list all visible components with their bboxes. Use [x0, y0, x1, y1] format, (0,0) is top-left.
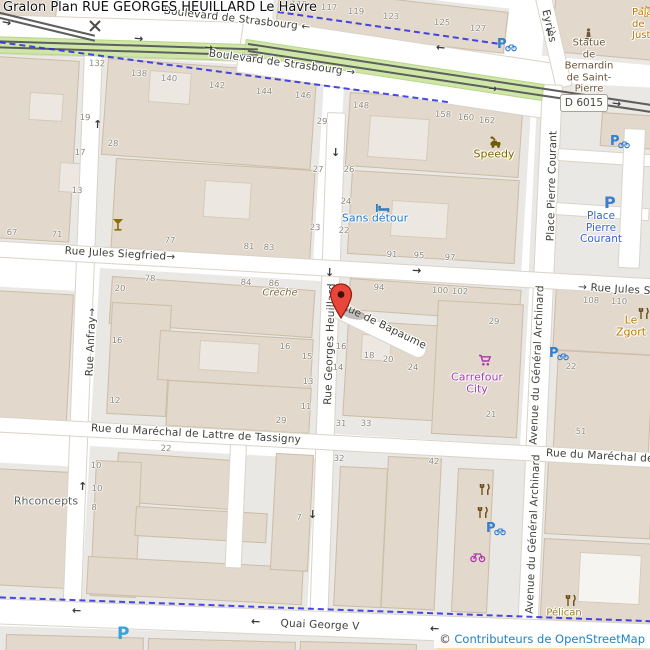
house-number: 71 — [51, 230, 62, 241]
courtyard — [198, 340, 260, 374]
oneway-arrow-icon: → — [611, 96, 622, 110]
house-number: 110 — [611, 297, 628, 308]
poi-label-palais-justice: Palais deJustice — [632, 7, 650, 42]
oneway-arrow-icon: ← — [72, 604, 82, 617]
house-number: 31 — [335, 419, 346, 430]
house-number: 29 — [316, 117, 327, 128]
house-number: 16 — [111, 336, 122, 347]
oneway-arrow-icon: → — [133, 32, 143, 46]
house-number: 83 — [263, 243, 274, 254]
house-number: 94 — [373, 283, 384, 294]
house-number: 29 — [275, 416, 286, 427]
house-number: 32 — [333, 454, 344, 465]
poi-label-creche: Crèche — [262, 287, 297, 299]
house-number: 26 — [343, 165, 354, 176]
house-number: 27 — [312, 165, 323, 176]
house-number: 140 — [161, 74, 178, 85]
oneway-arrow-icon: ↑ — [93, 118, 103, 131]
oneway-arrow-icon: ↑ — [78, 480, 88, 493]
house-number: 142 — [209, 81, 226, 92]
house-number: 28 — [107, 139, 118, 150]
oneway-arrow-icon: ← — [435, 41, 446, 55]
house-number: 148 — [353, 101, 370, 112]
oneway-arrow-icon: ↓ — [325, 266, 335, 279]
osm-attribution-link[interactable]: Contributeurs de OpenStreetMap — [454, 632, 645, 646]
house-number: 67 — [6, 228, 17, 239]
poi-label-rhconcepts: Rhconcepts — [14, 495, 78, 507]
courtyard — [577, 552, 642, 605]
building — [0, 290, 74, 424]
courtyard — [203, 180, 252, 220]
house-number: 97 — [444, 253, 455, 264]
oneway-arrow-icon: → — [203, 41, 214, 55]
house-number: 21 — [485, 410, 496, 421]
house-number: 117 — [321, 3, 338, 14]
house-number: 162 — [479, 116, 496, 127]
house-number: 24 — [340, 197, 351, 208]
house-number: 146 — [295, 91, 312, 102]
bike-parking-icon: P — [497, 36, 517, 56]
house-number: 18 — [363, 351, 374, 362]
house-number: 7 — [296, 513, 302, 523]
oneway-arrow-icon: → — [487, 81, 498, 95]
house-number: 24 — [407, 363, 418, 374]
house-number: 91 — [386, 250, 397, 261]
house-number: 20 — [382, 355, 393, 366]
map-canvas[interactable]: Boulevard de Strasbourg ←Boulevard de St… — [0, 0, 650, 650]
poi-label-speedy: Speedy — [474, 148, 515, 160]
oneway-arrow-icon: → — [412, 264, 422, 277]
house-number: 15 — [301, 352, 312, 363]
restaurant-icon — [477, 504, 489, 523]
building — [381, 456, 442, 610]
shopping-cart-icon — [478, 352, 492, 371]
parking-place-pierre-courant: P — [604, 193, 616, 212]
building — [0, 56, 80, 243]
house-number: 127 — [470, 24, 487, 35]
house-number: 100 — [432, 286, 449, 297]
poi-label-sans-detour: Sans détour — [342, 212, 408, 224]
building — [0, 468, 74, 589]
poi-label-place-pierre-courant-parking: Place PierreCourant — [577, 211, 626, 246]
poi-label-carrefour-city: CarrefourCity — [451, 372, 503, 395]
road-shield: D 6015 — [560, 94, 608, 112]
bike-parking-icon: P — [486, 520, 506, 540]
house-number: 102 — [452, 287, 469, 298]
house-number: 17 — [74, 148, 85, 159]
house-number: 132 — [89, 59, 106, 70]
courtyard — [28, 92, 64, 122]
house-number: 77 — [164, 236, 175, 247]
house-number: 119 — [348, 7, 365, 18]
svg-text:P: P — [610, 134, 620, 149]
house-number: 8 — [91, 503, 97, 513]
poi-label-pelican: Pélican — [546, 607, 581, 619]
house-number: 33 — [360, 419, 371, 430]
house-number: 84 — [240, 278, 251, 289]
oneway-arrow-icon: ↓ — [308, 508, 318, 521]
house-number: 13 — [71, 186, 82, 197]
house-number: 42 — [428, 457, 439, 468]
house-number: 12 — [109, 396, 120, 407]
poi-label-le-zgort: Le Zgort — [616, 315, 646, 338]
svg-text:P: P — [486, 521, 496, 536]
house-number: 14 — [332, 363, 343, 374]
house-number: 81 — [243, 242, 254, 253]
rail-crossing-icon — [88, 18, 102, 37]
poi-label-statue-bernardin: Statuede Bernardinde Saint-Pierre — [559, 37, 620, 95]
house-number: 11 — [300, 402, 311, 413]
house-number: 144 — [256, 87, 273, 98]
page-title: Gralon Plan RUE GEORGES HEUILLARD Le Hav… — [3, 0, 317, 15]
house-number: 10 — [91, 484, 102, 495]
house-number: 13 — [302, 377, 313, 388]
house-number: 19 — [79, 113, 90, 124]
house-number: 16 — [279, 342, 290, 353]
house-number: 51 — [575, 427, 586, 438]
restaurant-icon — [479, 481, 491, 500]
oneway-arrow-icon: ↓ — [331, 146, 341, 159]
house-number: 29 — [488, 317, 499, 328]
house-number: 23 — [309, 223, 320, 234]
house-number: 16 — [335, 342, 346, 353]
house-number: 22 — [338, 226, 349, 237]
copyright-symbol: © — [439, 632, 451, 646]
house-number: 123 — [383, 12, 400, 23]
house-number: 138 — [131, 69, 148, 80]
house-number: 78 — [144, 274, 155, 285]
parking-quai: P — [117, 624, 129, 644]
building — [544, 460, 650, 539]
oneway-arrow-icon: ← — [251, 615, 261, 628]
house-number: 158 — [435, 110, 452, 121]
svg-text:P: P — [549, 346, 559, 361]
house-number: 108 — [583, 296, 600, 307]
house-number: 10 — [90, 461, 101, 472]
house-number: 20 — [114, 284, 125, 295]
bar-icon — [112, 216, 124, 235]
map-marker[interactable] — [328, 283, 372, 327]
attribution: © Contributeurs de OpenStreetMap — [434, 631, 650, 648]
bicycle-shop-icon — [470, 548, 486, 567]
bike-parking-icon: P — [610, 133, 630, 153]
house-number: 22 — [160, 444, 171, 455]
svg-text:P: P — [497, 37, 507, 52]
house-number: 95 — [413, 251, 424, 262]
courtyard — [367, 115, 430, 161]
building — [333, 466, 388, 608]
house-number: 160 — [458, 113, 475, 124]
house-number: 125 — [434, 18, 451, 29]
bike-parking-icon: P — [549, 345, 569, 365]
